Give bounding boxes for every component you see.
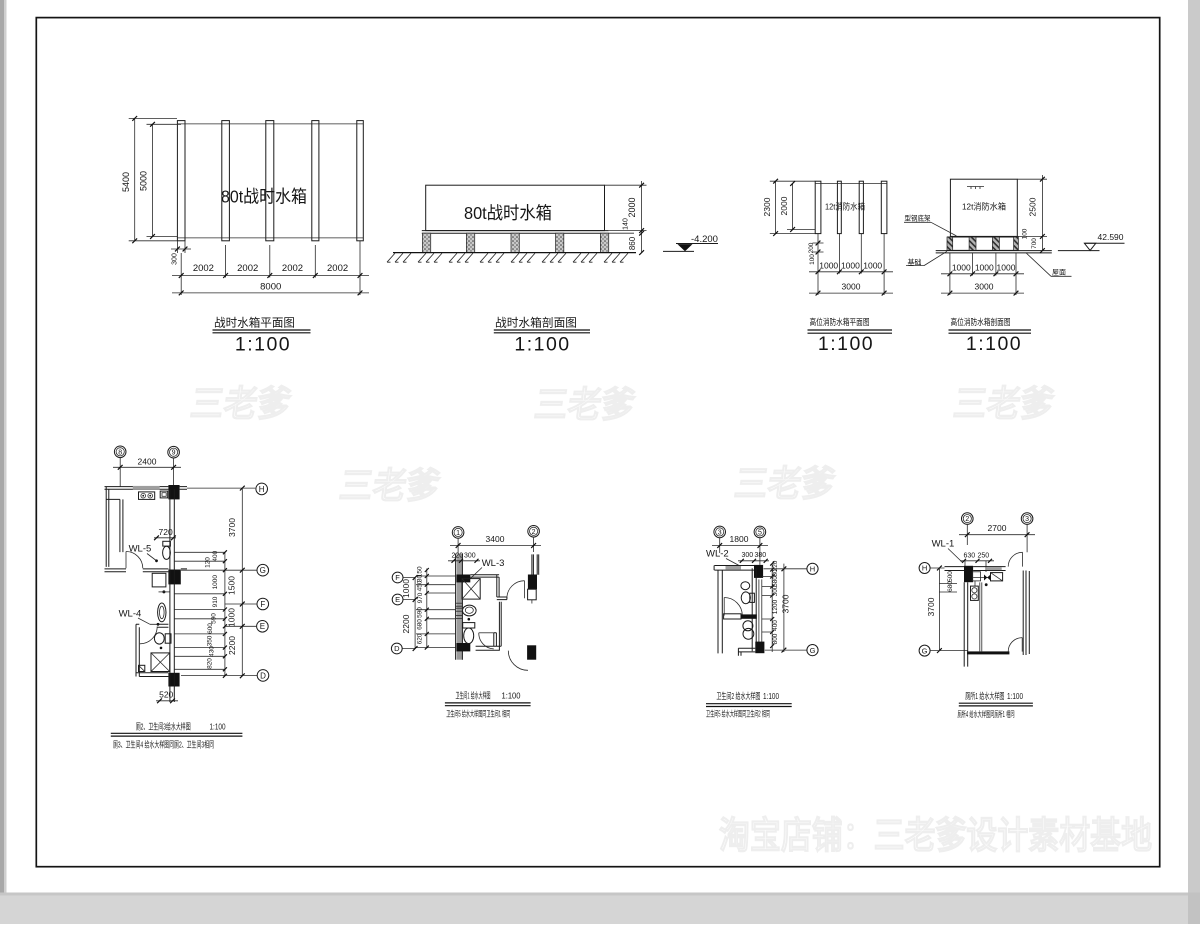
svg-text:5400: 5400	[121, 172, 131, 192]
svg-text:淘宝店铺：三老爹设计素材基地: 淘宝店铺：三老爹设计素材基地	[719, 815, 1152, 856]
svg-text:WL-3: WL-3	[482, 558, 505, 569]
svg-text:WL-1: WL-1	[932, 539, 955, 550]
svg-text:600: 600	[207, 623, 214, 634]
svg-text:1:100: 1:100	[818, 333, 874, 355]
svg-text:620: 620	[417, 633, 424, 644]
svg-text:680: 680	[947, 581, 954, 592]
svg-text:400: 400	[212, 550, 219, 561]
svg-text:1:100: 1:100	[966, 333, 1022, 355]
svg-text:3400: 3400	[486, 534, 505, 544]
svg-text:430: 430	[209, 646, 216, 657]
svg-text:高位消防水箱剖面图: 高位消防水箱剖面图	[951, 316, 1011, 327]
svg-text:基础: 基础	[908, 257, 922, 266]
svg-text:2002: 2002	[327, 263, 348, 274]
svg-text:G: G	[260, 566, 266, 575]
svg-text:2400: 2400	[138, 456, 157, 466]
svg-text:卫生间2 给水大样图: 卫生间2 给水大样图	[716, 690, 760, 701]
svg-text:1:100: 1:100	[763, 691, 779, 701]
svg-text:3: 3	[1025, 516, 1029, 523]
svg-text:3: 3	[718, 529, 722, 536]
svg-text:WL-4: WL-4	[119, 608, 142, 619]
svg-text:3000: 3000	[975, 282, 994, 292]
svg-text:970: 970	[417, 592, 424, 603]
svg-text:三老爹: 三老爹	[732, 463, 838, 504]
svg-text:1:100: 1:100	[235, 334, 291, 356]
svg-text:2200: 2200	[401, 614, 411, 633]
svg-text:300: 300	[172, 253, 179, 265]
svg-text:8: 8	[118, 449, 122, 456]
svg-text:2700: 2700	[988, 523, 1007, 533]
svg-text:战时水箱剖面图: 战时水箱剖面图	[495, 315, 577, 329]
svg-text:三老爹: 三老爹	[337, 465, 443, 506]
svg-text:2300: 2300	[762, 197, 772, 216]
svg-text:250: 250	[978, 553, 990, 560]
svg-text:2002: 2002	[193, 263, 214, 274]
svg-text:2: 2	[965, 516, 969, 523]
svg-text:1000: 1000	[819, 260, 838, 270]
svg-text:1000: 1000	[401, 579, 411, 598]
svg-text:1000: 1000	[841, 260, 860, 270]
svg-text:H: H	[922, 564, 927, 573]
svg-text:800: 800	[772, 633, 779, 644]
svg-text:860: 860	[628, 236, 637, 250]
svg-text:1:100: 1:100	[210, 722, 226, 732]
svg-text:200: 200	[808, 242, 815, 253]
svg-text:630: 630	[964, 553, 976, 560]
svg-text:2: 2	[532, 529, 536, 536]
svg-text:2002: 2002	[282, 263, 303, 274]
svg-text:1800: 1800	[730, 534, 749, 544]
svg-text:100: 100	[809, 254, 816, 265]
svg-text:3000: 3000	[842, 282, 861, 292]
svg-text:80t战时水箱: 80t战时水箱	[464, 203, 552, 223]
svg-text:G: G	[922, 646, 928, 655]
svg-text:820: 820	[207, 658, 214, 669]
svg-text:9: 9	[172, 450, 176, 457]
svg-text:卫生间1 给水大样图: 卫生间1 给水大样图	[456, 690, 491, 701]
svg-text:1200: 1200	[772, 599, 779, 614]
svg-text:D: D	[260, 671, 266, 680]
svg-text:80: 80	[772, 569, 779, 577]
svg-text:450: 450	[417, 580, 424, 591]
svg-text:厕所4 给水大样图同厕所1 相同: 厕所4 给水大样图同厕所1 相同	[958, 709, 1015, 719]
svg-text:F: F	[395, 573, 400, 582]
svg-text:2000: 2000	[779, 196, 789, 215]
svg-text:1000: 1000	[997, 262, 1016, 272]
svg-text:卫生间5 给水大样图同卫生间1 相同: 卫生间5 给水大样图同卫生间1 相同	[446, 708, 510, 718]
svg-text:5: 5	[758, 529, 762, 536]
svg-text:1000: 1000	[975, 262, 994, 272]
svg-text:G: G	[810, 646, 816, 655]
svg-text:厕所1 给水大样图: 厕所1 给水大样图	[965, 690, 1004, 701]
svg-text:380: 380	[755, 552, 767, 559]
svg-text:300: 300	[464, 553, 476, 560]
svg-text:2000: 2000	[627, 197, 637, 217]
svg-text:3700: 3700	[926, 597, 936, 616]
svg-text:2500: 2500	[1027, 197, 1037, 216]
svg-text:500: 500	[947, 571, 954, 582]
svg-text:战时水箱平面图: 战时水箱平面图	[214, 315, 295, 329]
svg-text:2002: 2002	[237, 263, 258, 274]
svg-text:三老爹: 三老爹	[188, 383, 294, 424]
svg-text:12t消防水箱: 12t消防水箱	[825, 202, 865, 212]
svg-text:1:100: 1:100	[502, 691, 521, 701]
svg-text:8000: 8000	[260, 281, 281, 292]
svg-text:卫生间5 给水大样图同卫生间2 相同: 卫生间5 给水大样图同卫生间2 相同	[706, 709, 770, 719]
svg-text:WL-5: WL-5	[129, 544, 152, 555]
svg-text:三老爹: 三老爹	[532, 384, 638, 425]
svg-text:厕2、卫生间3给水大样图: 厕2、卫生间3给水大样图	[136, 721, 191, 732]
svg-text:400: 400	[772, 620, 779, 631]
svg-text:580: 580	[772, 576, 779, 587]
svg-text:E: E	[260, 622, 265, 631]
svg-text:120: 120	[205, 557, 212, 568]
svg-text:1000: 1000	[227, 608, 237, 627]
svg-text:D: D	[394, 644, 400, 653]
svg-text:140: 140	[623, 218, 630, 230]
svg-text:5000: 5000	[139, 171, 149, 191]
svg-text:1500: 1500	[227, 576, 237, 595]
svg-text:1:100: 1:100	[514, 334, 570, 356]
svg-text:300: 300	[742, 552, 754, 559]
svg-text:220: 220	[452, 553, 464, 560]
svg-text:1: 1	[456, 530, 460, 537]
svg-text:1000: 1000	[952, 262, 971, 272]
svg-text:3700: 3700	[781, 594, 791, 613]
svg-text:680: 680	[417, 619, 424, 630]
svg-text:1000: 1000	[212, 575, 219, 590]
svg-text:WL-2: WL-2	[706, 549, 729, 560]
svg-text:80t战时水箱: 80t战时水箱	[221, 187, 307, 207]
svg-text:3700: 3700	[227, 518, 237, 537]
svg-text:12t消防水箱: 12t消防水箱	[962, 202, 1006, 212]
svg-text:100: 100	[1021, 228, 1028, 239]
svg-text:F: F	[260, 600, 265, 609]
svg-text:300: 300	[772, 585, 779, 596]
svg-text:三老爹: 三老爹	[951, 383, 1057, 424]
svg-text:350: 350	[207, 635, 214, 646]
svg-text:厕3、卫生间4 给水大样图同厕2、卫生间3相同: 厕3、卫生间4 给水大样图同厕2、卫生间3相同	[113, 740, 214, 750]
svg-text:520: 520	[159, 690, 173, 700]
svg-text:高位消防水箱平面图: 高位消防水箱平面图	[810, 316, 870, 327]
svg-text:屋面: 屋面	[1052, 268, 1066, 276]
svg-text:590: 590	[417, 607, 424, 618]
svg-text:H: H	[259, 485, 265, 494]
svg-text:型钢底架: 型钢底架	[905, 213, 931, 222]
svg-text:720: 720	[159, 527, 173, 537]
svg-text:H: H	[810, 565, 815, 574]
svg-text:700: 700	[1031, 238, 1038, 249]
svg-text:E: E	[395, 595, 400, 604]
svg-text:590: 590	[211, 613, 218, 624]
svg-text:1:100: 1:100	[1007, 691, 1023, 701]
svg-text:1000: 1000	[863, 260, 882, 270]
svg-text:910: 910	[212, 596, 219, 607]
svg-text:42.590: 42.590	[1098, 232, 1124, 242]
svg-text:2200: 2200	[227, 636, 237, 655]
